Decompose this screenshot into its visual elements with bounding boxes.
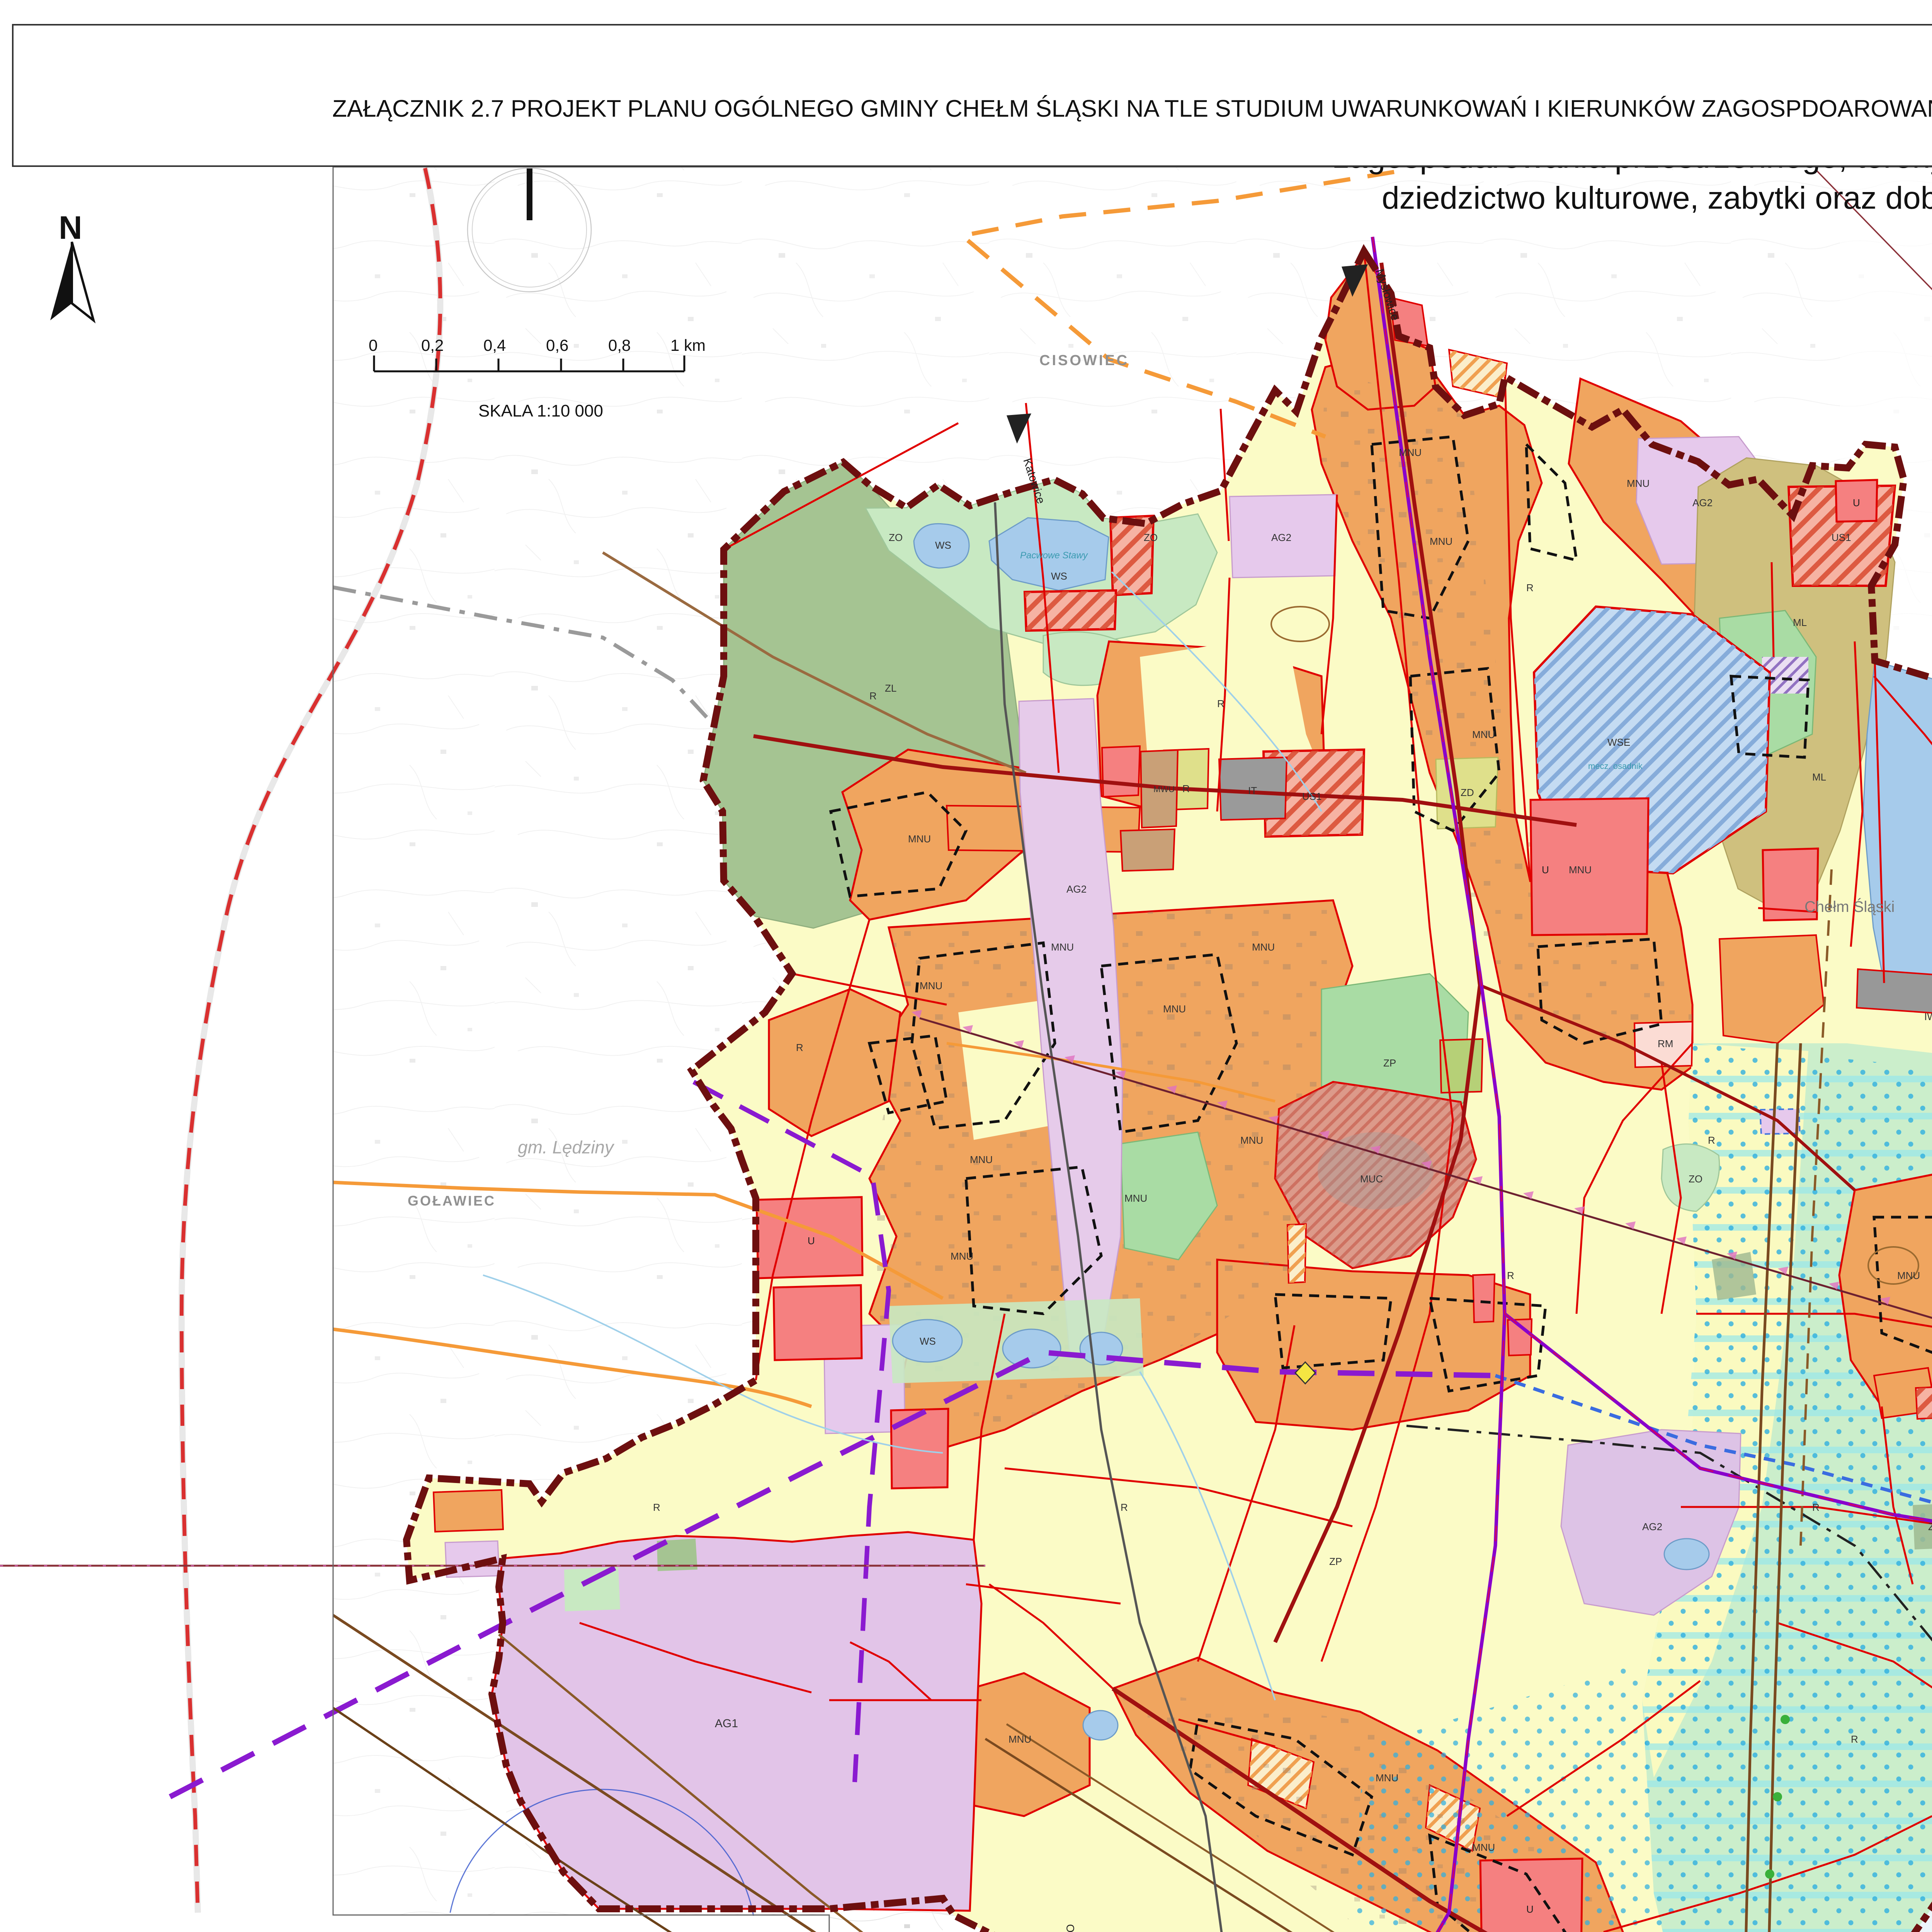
svg-text:US1: US1	[1832, 532, 1851, 543]
svg-text:1 km: 1 km	[670, 336, 706, 354]
svg-text:MNU: MNU	[920, 980, 942, 992]
svg-text:MNU: MNU	[908, 833, 931, 845]
svg-text:R: R	[1217, 698, 1225, 709]
svg-text:ZL: ZL	[885, 682, 896, 694]
svg-text:R: R	[1851, 1733, 1858, 1745]
svg-text:Pacwowe Stawy: Pacwowe Stawy	[1020, 550, 1088, 561]
svg-text:R: R	[1812, 1502, 1820, 1513]
svg-text:ML: ML	[1793, 617, 1807, 628]
svg-text:R: R	[796, 1042, 803, 1053]
svg-text:MUC: MUC	[1360, 1173, 1383, 1185]
svg-text:R: R	[1121, 1502, 1128, 1513]
svg-text:IW: IW	[1924, 1011, 1932, 1022]
svg-text:U: U	[1542, 864, 1549, 876]
svg-text:R: R	[1182, 783, 1190, 794]
svg-text:U: U	[808, 1235, 815, 1247]
svg-text:R: R	[1708, 1134, 1715, 1146]
svg-text:MNU: MNU	[1252, 941, 1275, 953]
svg-text:MNU: MNU	[1430, 536, 1452, 547]
svg-text:AG2: AG2	[1692, 497, 1713, 509]
svg-text:mecz. osadnik: mecz. osadnik	[1588, 761, 1643, 771]
svg-text:ZP: ZP	[1383, 1057, 1396, 1069]
svg-text:AG2: AG2	[1066, 883, 1087, 895]
svg-text:AG2: AG2	[1642, 1521, 1662, 1532]
svg-text:MNU: MNU	[1472, 729, 1495, 740]
svg-text:0,4: 0,4	[483, 336, 506, 354]
svg-text:MNU: MNU	[1009, 1733, 1031, 1745]
svg-text:WSE: WSE	[1607, 736, 1630, 748]
svg-text:AG2: AG2	[1271, 532, 1291, 543]
svg-text:ZP: ZP	[1329, 1556, 1342, 1567]
svg-text:MNU: MNU	[1051, 941, 1074, 953]
svg-text:MNU: MNU	[1124, 1192, 1147, 1204]
svg-text:N: N	[59, 209, 82, 246]
svg-text:MWU: MWU	[1153, 784, 1175, 794]
svg-text:ZO: ZO	[889, 532, 903, 543]
svg-text:SKALA 1:10 000: SKALA 1:10 000	[478, 401, 603, 420]
svg-text:MNU: MNU	[1472, 1842, 1495, 1853]
svg-text:IT: IT	[1248, 785, 1257, 796]
svg-text:WS: WS	[1051, 570, 1067, 582]
svg-text:R: R	[869, 690, 877, 702]
svg-text:MNU: MNU	[1897, 1270, 1920, 1281]
svg-text:Chełm Śląski: Chełm Śląski	[1804, 898, 1895, 915]
svg-text:ZD: ZD	[1461, 787, 1474, 798]
svg-text:ZL: ZL	[1928, 1521, 1932, 1532]
svg-text:AG1: AG1	[715, 1717, 738, 1730]
svg-text:0: 0	[369, 336, 378, 354]
svg-text:MNU: MNU	[1627, 478, 1650, 489]
svg-text:Oświęcim: Oświęcim	[1064, 1924, 1078, 1932]
svg-text:MNU: MNU	[1399, 447, 1422, 458]
svg-text:0,8: 0,8	[608, 336, 631, 354]
svg-text:WS: WS	[935, 539, 951, 551]
svg-text:US1: US1	[1302, 791, 1322, 802]
svg-text:R: R	[1507, 1270, 1514, 1281]
svg-text:0,2: 0,2	[421, 336, 444, 354]
svg-text:MNU: MNU	[951, 1250, 973, 1262]
svg-text:MNU: MNU	[1569, 864, 1592, 876]
svg-text:ML: ML	[1812, 771, 1826, 783]
svg-text:MNU: MNU	[1240, 1134, 1263, 1146]
svg-text:dziedzictwo kulturowe, zabytki: dziedzictwo kulturowe, zabytki oraz dobr…	[1382, 180, 1932, 216]
svg-text:GOŁAWIEC: GOŁAWIEC	[408, 1193, 496, 1209]
svg-text:R: R	[1526, 582, 1534, 594]
svg-text:ZO: ZO	[1689, 1173, 1702, 1185]
svg-text:MNU: MNU	[1376, 1772, 1398, 1784]
svg-text:ZAŁĄCZNIK 2.7 PROJEKT PLANU OG: ZAŁĄCZNIK 2.7 PROJEKT PLANU OGÓLNEGO GMI…	[332, 95, 1932, 122]
svg-text:gm. Lędziny: gm. Lędziny	[518, 1137, 615, 1157]
svg-text:R: R	[653, 1502, 660, 1513]
svg-text:ZO: ZO	[1144, 532, 1158, 543]
svg-text:CISOWIEC: CISOWIEC	[1039, 352, 1129, 369]
svg-text:MNU: MNU	[1163, 1003, 1186, 1015]
svg-text:RM: RM	[1658, 1038, 1673, 1049]
svg-text:MNU: MNU	[970, 1154, 993, 1165]
svg-text:0,6: 0,6	[546, 336, 568, 354]
svg-text:U: U	[1526, 1903, 1534, 1915]
svg-text:U: U	[1853, 497, 1860, 509]
svg-text:WS: WS	[920, 1335, 936, 1347]
